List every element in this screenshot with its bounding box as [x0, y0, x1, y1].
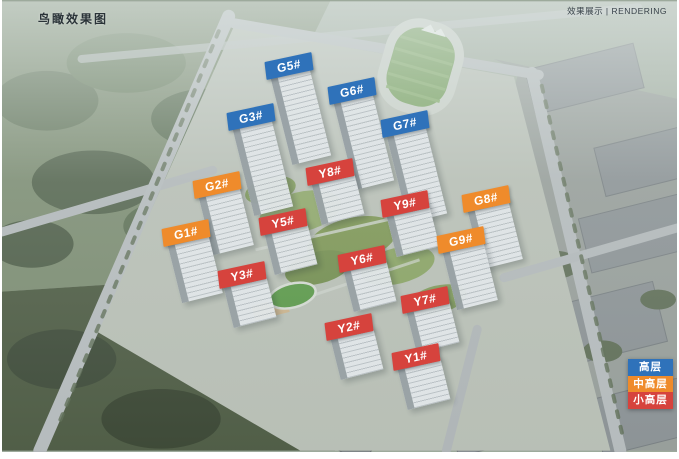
building-tag-g7: G7#: [380, 110, 429, 138]
building-tag-y1: Y1#: [391, 343, 440, 371]
building-tag-g8: G8#: [461, 185, 510, 213]
building-tag-g6: G6#: [327, 77, 376, 105]
building-tag-y7: Y7#: [400, 286, 449, 314]
building-tag-y8: Y8#: [305, 158, 354, 186]
legend-high: 高层: [628, 359, 673, 376]
legend: 高层中高层小高层: [628, 359, 673, 409]
aerial-scene: G5#G6#G3#G7#Y8#G2#G8#Y9#Y5#G1#G9#Y6#Y3#Y…: [2, 0, 677, 452]
watermark-text: 效果展示 | RENDERING: [567, 5, 667, 17]
building-tag-g5: G5#: [264, 52, 313, 80]
building-tag-g9: G9#: [436, 226, 485, 254]
building-tag-y3: Y3#: [217, 261, 266, 289]
building-tag-g2: G2#: [192, 171, 241, 199]
legend-small: 小高层: [628, 392, 673, 409]
legend-mid: 中高层: [628, 376, 673, 393]
building-tag-y2: Y2#: [324, 313, 373, 341]
building-tags: G5#G6#G3#G7#Y8#G2#G8#Y9#Y5#G1#G9#Y6#Y3#Y…: [2, 0, 677, 452]
building-tag-y6: Y6#: [337, 245, 386, 273]
rendering-page: G5#G6#G3#G7#Y8#G2#G8#Y9#Y5#G1#G9#Y6#Y3#Y…: [0, 0, 679, 459]
page-title: 鸟瞰效果图: [38, 10, 108, 27]
building-tag-g3: G3#: [226, 103, 275, 131]
building-tag-g1: G1#: [161, 219, 210, 247]
building-tag-y5: Y5#: [258, 208, 307, 236]
building-tag-y9: Y9#: [380, 190, 429, 218]
